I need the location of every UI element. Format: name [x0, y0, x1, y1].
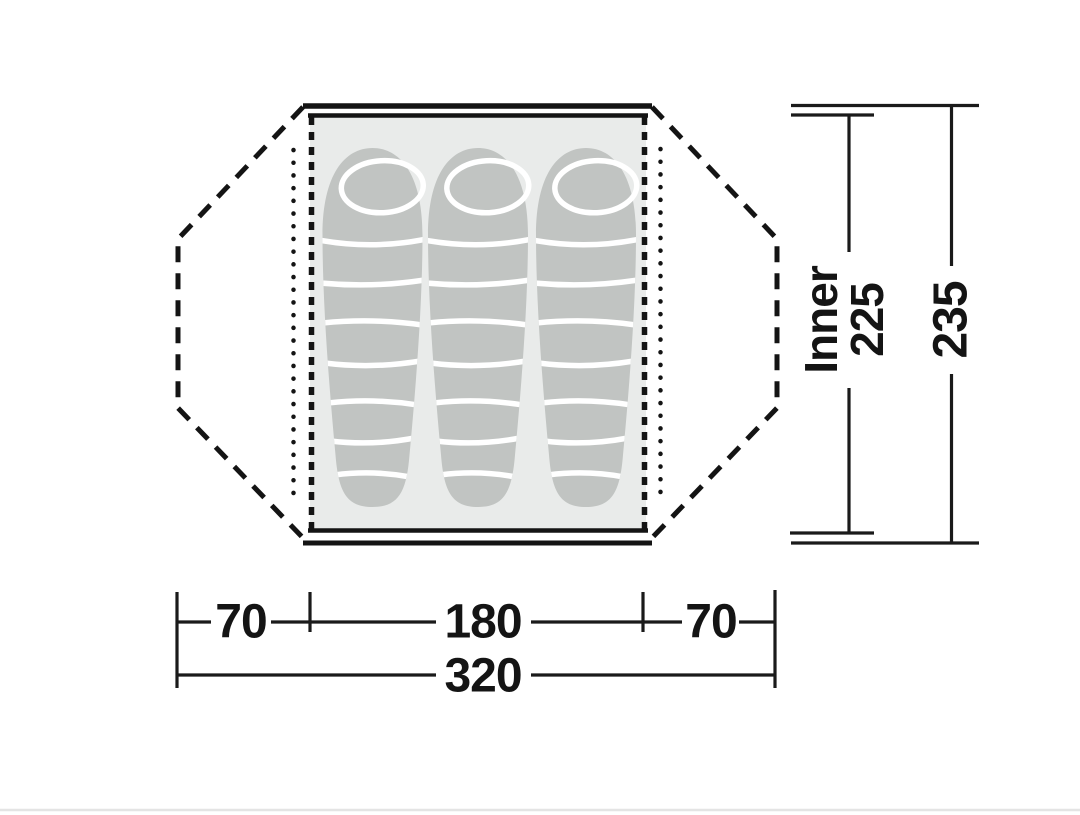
right-vestibule-width-label: 70 — [685, 596, 736, 649]
inner-depth-value-label: 225 — [841, 283, 893, 357]
footprint-right-vestibule-dashed — [650, 107, 777, 540]
dimension-total-width: 320 — [177, 650, 775, 703]
inner-width-label: 180 — [444, 596, 521, 649]
outer-depth-value-label: 235 — [925, 281, 978, 358]
tent-floorplan-page: Inner 225 235 70 180 70 320 — [0, 0, 1080, 815]
inner-depth-word-label: Inner — [795, 265, 847, 374]
footprint-left-vestibule-dashed — [178, 107, 305, 540]
left-vestibule-width-label: 70 — [215, 596, 266, 649]
total-width-label: 320 — [444, 650, 521, 703]
dimension-inner-depth: Inner 225 — [790, 115, 893, 533]
tent-floorplan-diagram: Inner 225 235 70 180 70 320 — [0, 0, 1080, 815]
sleeping-bags — [319, 148, 641, 507]
